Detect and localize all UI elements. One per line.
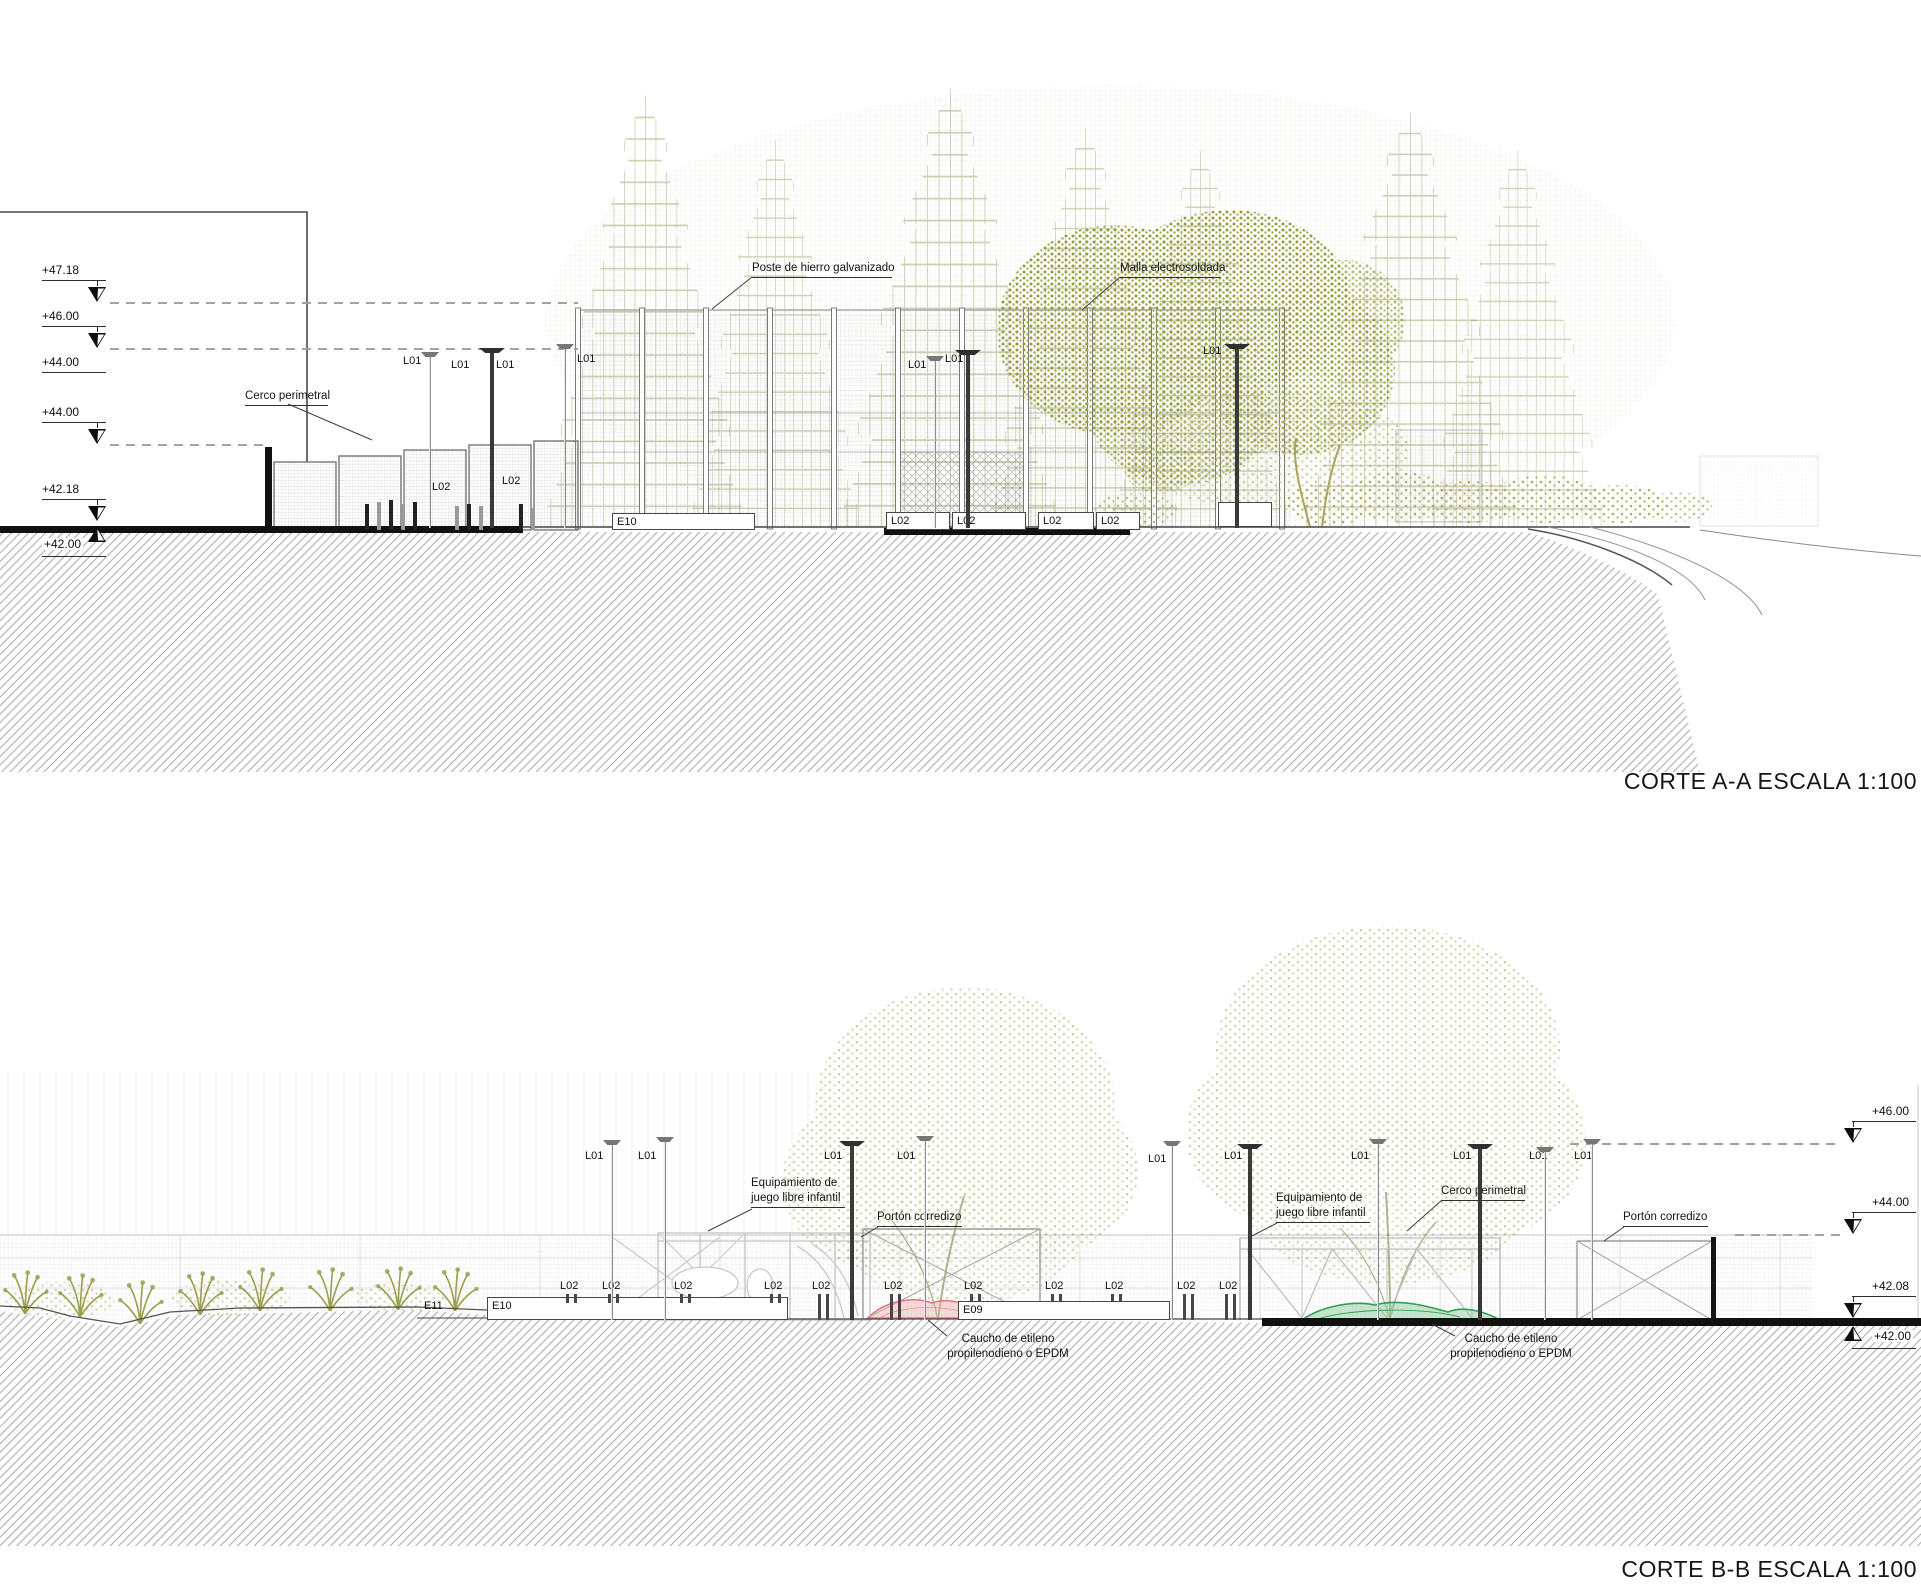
l02-post <box>1059 1294 1062 1302</box>
light-pole <box>924 1140 927 1320</box>
light-pole-cap <box>656 1137 674 1142</box>
light-pole <box>1377 1143 1380 1320</box>
elevation-label: +42.00 <box>42 538 83 550</box>
annotation-poste: Poste de hierro galvanizado <box>752 261 892 278</box>
light-pole <box>966 354 970 528</box>
elevation-underline <box>1852 1212 1916 1213</box>
l02-post <box>616 1294 619 1303</box>
l02-post <box>1183 1294 1186 1320</box>
light-pole <box>490 352 494 528</box>
tag-label-l02: L02 <box>812 1281 830 1292</box>
elevation-label: +44.00 <box>1872 1196 1909 1208</box>
elevation-arrow-icon <box>88 287 106 302</box>
bench-box <box>1218 502 1272 527</box>
elevation-label: +42.00 <box>1872 1330 1913 1342</box>
elevation-label: +47.18 <box>42 264 79 276</box>
elevation-label: +42.18 <box>42 483 79 495</box>
elevation-arrow-icon <box>1844 1326 1862 1341</box>
l02-post <box>608 1294 611 1303</box>
tag-label-l01: L01 <box>585 1151 603 1162</box>
level-dash-line <box>1570 1143 1842 1145</box>
annotation-line: propilenodieno o EPDM <box>1444 1347 1578 1362</box>
tag-label-l01: L01 <box>1203 346 1221 357</box>
annotation-equip-2: Equipamiento dejuego libre infantil <box>1276 1191 1370 1223</box>
l02-post <box>1111 1294 1114 1302</box>
bollard-post <box>389 500 393 530</box>
tag-label-l02: L02 <box>964 1281 982 1292</box>
equipment-box-e10: E10 <box>612 513 755 530</box>
tag-label-l01: L01 <box>1351 1151 1369 1162</box>
equipment-box-e10: E10 <box>487 1297 788 1320</box>
level-dash-line <box>110 302 578 304</box>
light-pole <box>850 1145 854 1320</box>
annotation-line: juego libre infantil <box>751 1191 845 1206</box>
elevation-tick <box>97 422 98 428</box>
elevation-tick <box>97 280 98 286</box>
equipment-box-l02: L02 <box>952 512 1026 530</box>
light-pole-cap <box>421 352 439 357</box>
tag-label-l02: L02 <box>432 482 450 493</box>
section-a-title: CORTE A-A ESCALA 1:100 <box>1624 768 1917 795</box>
tag-label-l01: L01 <box>577 354 595 365</box>
annotation-line: Equipamiento de <box>751 1176 845 1191</box>
l02-post <box>970 1294 973 1302</box>
tag-label-l02: L02 <box>1177 1281 1195 1292</box>
light-pole <box>934 360 937 528</box>
elevation-underline <box>1852 1121 1916 1122</box>
tag-label-l02: L02 <box>560 1281 578 1292</box>
tag-label-l01: L01 <box>1453 1151 1471 1162</box>
elevation-underline <box>42 372 106 373</box>
light-pole <box>564 348 567 528</box>
annotation-cerco-a: Cerco perimetral <box>245 389 328 406</box>
light-pole-cap <box>839 1141 865 1146</box>
bollard-post <box>479 506 483 530</box>
bollard-post <box>519 504 523 530</box>
elevation-underline <box>42 556 106 557</box>
elevation-arrow-icon <box>1844 1128 1862 1143</box>
annotation-line: Equipamiento de <box>1276 1191 1370 1206</box>
l02-post <box>574 1294 577 1303</box>
tag-label-l01: L01 <box>908 360 926 371</box>
level-dash-line <box>110 348 578 350</box>
tag-label-l01: L01 <box>403 356 421 367</box>
annotation-line: Cerco perimetral <box>245 389 328 404</box>
annotation-porton-2: Portón corredizo <box>1623 1210 1708 1227</box>
annotation-caucho-1: Caucho de etilenopropilenodieno o EPDM <box>944 1332 1072 1362</box>
l02-post <box>680 1294 683 1303</box>
bollard-post <box>401 504 405 530</box>
elevation-tick <box>97 326 98 332</box>
elevation-arrow-icon <box>88 429 106 444</box>
tag-label-l01: L01 <box>1148 1154 1166 1165</box>
light-pole-cap <box>1467 1144 1493 1149</box>
light-pole-cap <box>1163 1141 1181 1146</box>
light-pole <box>1591 1143 1594 1320</box>
annotation-line: Portón corredizo <box>877 1210 962 1225</box>
elevation-label: +42.08 <box>1872 1280 1909 1292</box>
tag-label-l01: L01 <box>638 1151 656 1162</box>
elevation-tick <box>1853 1296 1854 1302</box>
tag-label-l01: L01 <box>451 360 469 371</box>
bollard-post <box>413 502 417 530</box>
l02-post <box>818 1294 821 1320</box>
light-pole <box>1544 1151 1547 1320</box>
section-b-title: CORTE B-B ESCALA 1:100 <box>1621 1556 1917 1583</box>
annotation-line: juego libre infantil <box>1276 1206 1370 1221</box>
annotation-cerco-b: Cerco perimetral <box>1441 1184 1525 1201</box>
elevation-label: +44.00 <box>42 406 79 418</box>
annotation-malla: Malla electrosoldada <box>1120 261 1220 278</box>
bollard-post <box>455 506 459 530</box>
elevation-arrow-icon <box>88 527 106 542</box>
equipment-box-l02: L02 <box>1038 512 1094 530</box>
l02-post <box>1191 1294 1194 1320</box>
light-pole-cap <box>1237 1144 1263 1149</box>
l02-post <box>1225 1294 1228 1320</box>
l02-post <box>770 1294 773 1303</box>
tag-label-l02: L02 <box>674 1281 692 1292</box>
annotation-line: propilenodieno o EPDM <box>944 1347 1072 1362</box>
elevation-arrow-icon <box>1844 1303 1862 1318</box>
light-pole <box>429 356 432 528</box>
elevation-arrow-icon <box>1844 1219 1862 1234</box>
equipment-box-l02: L02 <box>1096 512 1140 530</box>
bollard-post <box>365 504 369 530</box>
tag-label-l01: L01 <box>1224 1151 1242 1162</box>
equipment-box-l02: L02 <box>886 512 950 530</box>
drawing-canvas: +47.18+46.00+44.00+44.00+42.18+42.00+46.… <box>0 0 1921 1589</box>
elevation-tick <box>97 499 98 505</box>
elevation-label: +44.00 <box>42 356 79 368</box>
tag-label-l02: L02 <box>1105 1281 1123 1292</box>
l02-post <box>890 1294 893 1320</box>
annotation-line: Portón corredizo <box>1623 1210 1708 1225</box>
light-pole <box>664 1141 667 1320</box>
l02-post <box>778 1294 781 1303</box>
l02-post <box>826 1294 829 1320</box>
l02-post <box>1119 1294 1122 1302</box>
light-pole <box>611 1144 614 1320</box>
tag-label-l02: L02 <box>1219 1281 1237 1292</box>
light-pole-cap <box>1224 344 1250 349</box>
light-pole-cap <box>603 1140 621 1145</box>
elevation-label: +46.00 <box>42 310 79 322</box>
annotation-caucho-2: Caucho de etilenopropilenodieno o EPDM <box>1444 1332 1578 1362</box>
elevation-arrow-icon <box>88 506 106 521</box>
light-pole <box>1171 1145 1174 1320</box>
elevation-tick <box>1853 1212 1854 1218</box>
level-dash-line <box>1735 1234 1842 1236</box>
light-pole <box>1248 1148 1252 1320</box>
annotation-porton-1: Portón corredizo <box>877 1210 962 1227</box>
l02-post <box>1233 1294 1236 1320</box>
equipment-box-e09: E09 <box>958 1301 1170 1320</box>
tag-label-l01: L01 <box>824 1151 842 1162</box>
bollard-post <box>467 504 471 530</box>
l02-post <box>978 1294 981 1302</box>
light-pole-cap <box>1369 1139 1387 1144</box>
l02-post <box>688 1294 691 1303</box>
level-dash-line <box>110 444 268 446</box>
l02-post <box>566 1294 569 1303</box>
elevation-underline <box>1852 1348 1916 1349</box>
elevation-tick <box>1853 1121 1854 1127</box>
tag-label-l01: L01 <box>945 354 963 365</box>
tag-label-l02: L02 <box>1045 1281 1063 1292</box>
annotation-line: Malla electrosoldada <box>1120 261 1220 276</box>
annotation-line: Caucho de etileno <box>944 1332 1072 1347</box>
light-pole <box>1478 1148 1482 1320</box>
light-pole-cap <box>916 1136 934 1141</box>
annotation-line: Poste de hierro galvanizado <box>752 261 892 276</box>
annotation-line: Cerco perimetral <box>1441 1184 1525 1199</box>
annotation-equip-1: Equipamiento dejuego libre infantil <box>751 1176 845 1208</box>
tag-label-e11: E11 <box>424 1301 443 1312</box>
tag-label-l01: L01 <box>1574 1151 1592 1162</box>
elevation-underline <box>1852 1296 1916 1297</box>
bollard-post <box>531 508 535 530</box>
tag-label-l02: L02 <box>764 1281 782 1292</box>
annotation-line: Caucho de etileno <box>1444 1332 1578 1347</box>
light-pole <box>1235 348 1239 528</box>
elevation-arrow-icon <box>88 333 106 348</box>
elevation-label: +46.00 <box>1872 1105 1909 1117</box>
tag-label-l01: L01 <box>897 1151 915 1162</box>
light-pole-cap <box>479 348 505 353</box>
l02-post <box>1051 1294 1054 1302</box>
l02-post <box>898 1294 901 1320</box>
bollard-post <box>377 502 381 530</box>
tag-label-l01: L01 <box>496 360 514 371</box>
light-pole-cap <box>926 356 944 361</box>
tag-label-l02: L02 <box>884 1281 902 1292</box>
tag-label-l02: L02 <box>502 476 520 487</box>
